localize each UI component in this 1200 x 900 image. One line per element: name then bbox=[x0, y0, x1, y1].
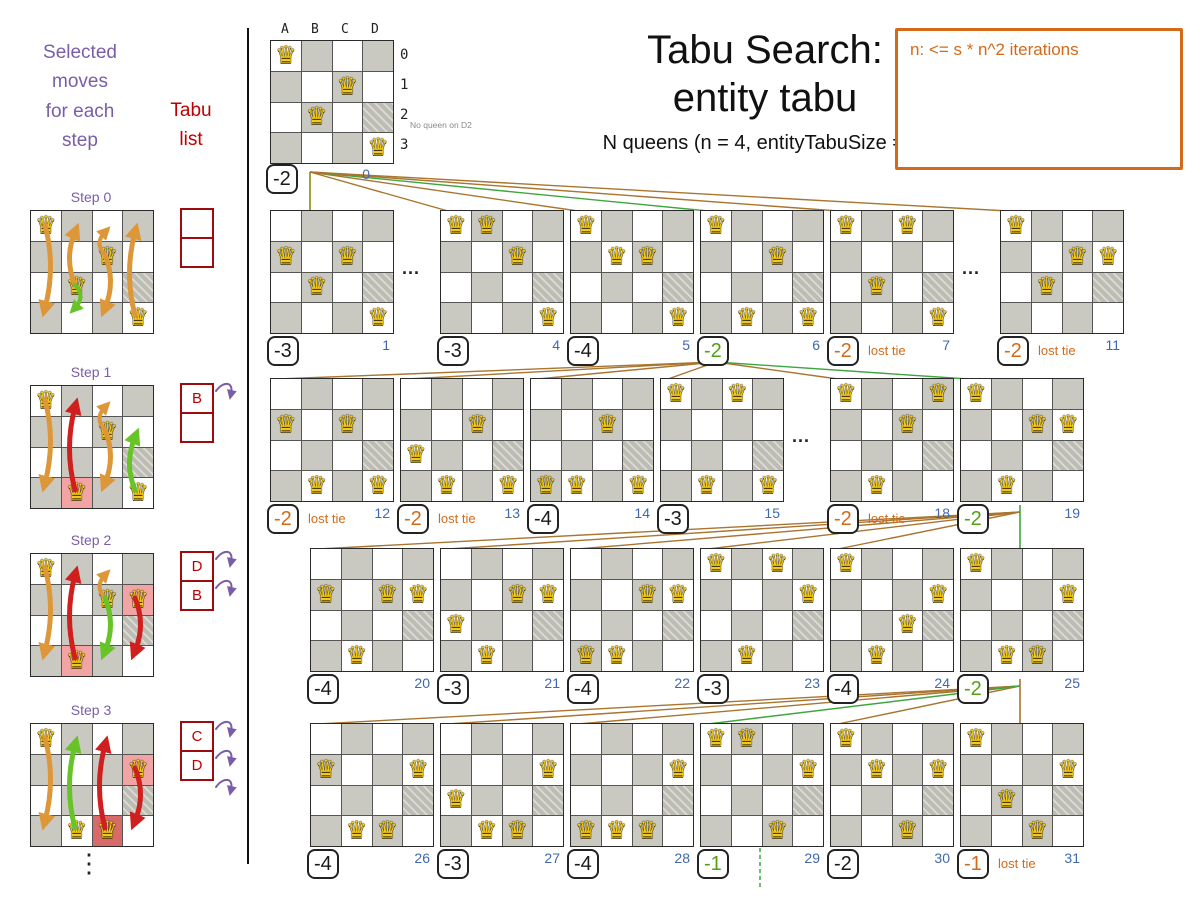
cell-C3 bbox=[463, 471, 493, 501]
cell-B0 bbox=[992, 724, 1022, 754]
cell-D1 bbox=[923, 410, 953, 440]
cell-A1: ♛ bbox=[311, 580, 341, 610]
cell-B0 bbox=[992, 379, 1022, 409]
cell-D2 bbox=[793, 611, 823, 641]
queen-icon: ♛ bbox=[337, 413, 359, 437]
cell-A3 bbox=[441, 816, 471, 846]
cell-C2 bbox=[503, 273, 533, 303]
cell-C3: ♛ bbox=[763, 816, 793, 846]
cell-A2 bbox=[701, 786, 731, 816]
cell-A2 bbox=[571, 611, 601, 641]
cell-B3 bbox=[862, 816, 892, 846]
cell-C3 bbox=[633, 641, 663, 671]
score-badge-20: -4 bbox=[307, 674, 339, 704]
cell-B1 bbox=[62, 585, 92, 615]
cell-A3 bbox=[831, 471, 861, 501]
cell-C0 bbox=[463, 379, 493, 409]
cell-D0 bbox=[533, 549, 563, 579]
score-badge-28: -4 bbox=[567, 849, 599, 879]
cell-B1 bbox=[342, 755, 372, 785]
ellipsis-horizontal: ... bbox=[792, 426, 810, 447]
solution-board-11: ♛♛♛♛ bbox=[1000, 210, 1124, 334]
solution-board-22: ♛♛♛♛ bbox=[570, 548, 694, 672]
cell-D2 bbox=[623, 441, 653, 471]
cell-D2 bbox=[793, 786, 823, 816]
cell-C1: ♛ bbox=[893, 410, 923, 440]
cell-A2 bbox=[531, 441, 561, 471]
cell-B2 bbox=[472, 786, 502, 816]
cell-B0 bbox=[862, 379, 892, 409]
column-label: B bbox=[311, 22, 319, 37]
cell-D2 bbox=[1053, 441, 1083, 471]
cell-D3 bbox=[1053, 816, 1083, 846]
cell-C1 bbox=[1023, 580, 1053, 610]
queen-icon: ♛ bbox=[445, 788, 467, 812]
cell-A2 bbox=[31, 448, 61, 478]
cell-A1 bbox=[961, 755, 991, 785]
solution-board-26: ♛♛♛♛ bbox=[310, 723, 434, 847]
cell-B2 bbox=[732, 611, 762, 641]
cell-D1: ♛ bbox=[923, 580, 953, 610]
cell-A0 bbox=[571, 549, 601, 579]
cell-A1 bbox=[31, 417, 61, 447]
cell-B3 bbox=[732, 816, 762, 846]
queen-icon: ♛ bbox=[797, 583, 819, 607]
cell-C3 bbox=[893, 471, 923, 501]
cell-A3 bbox=[961, 471, 991, 501]
cell-D1: ♛ bbox=[1093, 242, 1123, 272]
score-badge-6: -2 bbox=[697, 336, 729, 366]
cell-D0 bbox=[923, 724, 953, 754]
solution-board-21: ♛♛♛♛ bbox=[440, 548, 564, 672]
cell-D2 bbox=[1053, 786, 1083, 816]
cell-B1 bbox=[562, 410, 592, 440]
cell-C3 bbox=[763, 641, 793, 671]
cell-D3 bbox=[923, 816, 953, 846]
cell-C3 bbox=[333, 303, 363, 333]
cell-D1 bbox=[123, 417, 153, 447]
queen-icon: ♛ bbox=[996, 788, 1018, 812]
cell-B1 bbox=[472, 242, 502, 272]
cell-A2: ♛ bbox=[441, 611, 471, 641]
queen-icon: ♛ bbox=[965, 382, 987, 406]
solution-board-25: ♛♛♛♛ bbox=[960, 548, 1084, 672]
cell-A1 bbox=[701, 580, 731, 610]
cell-A1 bbox=[271, 72, 301, 102]
move-arrow bbox=[216, 581, 232, 591]
solution-board-7: ♛♛♛♛ bbox=[830, 210, 954, 334]
cell-A3 bbox=[441, 303, 471, 333]
cell-B0 bbox=[602, 724, 632, 754]
cell-A2 bbox=[701, 611, 731, 641]
solution-board-30: ♛♛♛♛ bbox=[830, 723, 954, 847]
cell-D2 bbox=[493, 441, 523, 471]
cell-C2 bbox=[93, 448, 123, 478]
queen-icon: ♛ bbox=[367, 306, 389, 330]
cell-A1 bbox=[701, 242, 731, 272]
cell-B2 bbox=[862, 786, 892, 816]
queen-icon: ♛ bbox=[606, 644, 628, 668]
queen-icon: ♛ bbox=[575, 819, 597, 843]
cell-D2 bbox=[533, 786, 563, 816]
queen-icon: ♛ bbox=[306, 105, 328, 129]
cell-B1 bbox=[732, 755, 762, 785]
cell-A0: ♛ bbox=[831, 549, 861, 579]
cell-C1 bbox=[763, 580, 793, 610]
cell-B3 bbox=[992, 816, 1022, 846]
cell-A1 bbox=[401, 410, 431, 440]
cell-A3 bbox=[31, 478, 61, 508]
cell-C2 bbox=[373, 786, 403, 816]
cell-D1: ♛ bbox=[123, 755, 153, 785]
cell-C0 bbox=[503, 211, 533, 241]
cell-A0: ♛ bbox=[961, 549, 991, 579]
cell-D3 bbox=[663, 641, 693, 671]
cell-C1: ♛ bbox=[763, 242, 793, 272]
queen-icon: ♛ bbox=[897, 214, 919, 238]
ellipsis-vertical: ⋮ bbox=[76, 848, 102, 879]
queen-icon: ♛ bbox=[705, 552, 727, 576]
cell-D3: ♛ bbox=[363, 133, 393, 163]
score-badge-15: -3 bbox=[657, 504, 689, 534]
queen-icon: ♛ bbox=[507, 583, 529, 607]
step-board-2: ♛♛♛♛ bbox=[30, 553, 154, 677]
cell-D0 bbox=[123, 724, 153, 754]
cell-B3 bbox=[602, 303, 632, 333]
cell-C2 bbox=[593, 441, 623, 471]
cell-D0 bbox=[663, 211, 693, 241]
cell-A0: ♛ bbox=[31, 211, 61, 241]
cell-A3: ♛ bbox=[531, 471, 561, 501]
cell-D2 bbox=[363, 441, 393, 471]
cell-B0 bbox=[1032, 211, 1062, 241]
cell-A2 bbox=[831, 273, 861, 303]
cell-A0: ♛ bbox=[701, 549, 731, 579]
cell-C2 bbox=[893, 273, 923, 303]
no-queen-annotation: No queen on D2 bbox=[410, 120, 472, 130]
cell-B0 bbox=[62, 386, 92, 416]
queen-icon: ♛ bbox=[1057, 583, 1079, 607]
queen-icon: ♛ bbox=[927, 306, 949, 330]
queen-icon: ♛ bbox=[767, 245, 789, 269]
cell-D0 bbox=[1053, 549, 1083, 579]
cell-A3 bbox=[831, 303, 861, 333]
cell-D3 bbox=[793, 641, 823, 671]
cell-A3 bbox=[31, 646, 61, 676]
cell-D0 bbox=[753, 379, 783, 409]
queen-icon: ♛ bbox=[476, 819, 498, 843]
cell-C2 bbox=[93, 786, 123, 816]
cell-A1 bbox=[571, 242, 601, 272]
lost-tie-label: lost tie bbox=[868, 511, 906, 526]
cell-D0 bbox=[363, 211, 393, 241]
cell-A1 bbox=[961, 580, 991, 610]
score-badge-25: -2 bbox=[957, 674, 989, 704]
cell-C0 bbox=[1023, 549, 1053, 579]
cell-A1 bbox=[961, 410, 991, 440]
root-board: ♛♛♛♛ bbox=[270, 40, 394, 164]
tabu-list-header: Tabu list bbox=[146, 96, 236, 155]
queen-icon: ♛ bbox=[507, 819, 529, 843]
queen-icon: ♛ bbox=[606, 819, 628, 843]
cell-D1 bbox=[363, 410, 393, 440]
cell-A1: ♛ bbox=[311, 755, 341, 785]
cell-A2 bbox=[31, 273, 61, 303]
cell-A3 bbox=[311, 816, 341, 846]
lost-tie-label: lost tie bbox=[1038, 343, 1076, 358]
cell-D0 bbox=[533, 211, 563, 241]
move-arrow bbox=[216, 384, 232, 394]
cell-D3: ♛ bbox=[923, 303, 953, 333]
cell-B3 bbox=[472, 303, 502, 333]
cell-B1: ♛ bbox=[602, 242, 632, 272]
queen-icon: ♛ bbox=[667, 758, 689, 782]
cell-C0 bbox=[93, 386, 123, 416]
cell-A0 bbox=[311, 724, 341, 754]
cell-D1 bbox=[123, 242, 153, 272]
cell-B0: ♛ bbox=[472, 211, 502, 241]
queen-icon: ♛ bbox=[727, 382, 749, 406]
cell-C3 bbox=[93, 646, 123, 676]
cell-D0 bbox=[1053, 379, 1083, 409]
cell-D1 bbox=[663, 242, 693, 272]
cell-B0 bbox=[302, 41, 332, 71]
queen-icon: ♛ bbox=[537, 306, 559, 330]
cell-B1 bbox=[992, 580, 1022, 610]
cell-C3 bbox=[93, 303, 123, 333]
cell-C0 bbox=[503, 724, 533, 754]
cell-B2 bbox=[732, 273, 762, 303]
queen-icon: ♛ bbox=[767, 552, 789, 576]
moves-header: Selected moves for each step bbox=[8, 38, 152, 156]
cell-B2 bbox=[472, 611, 502, 641]
cell-D2 bbox=[923, 441, 953, 471]
cell-A2 bbox=[701, 273, 731, 303]
cell-B2: ♛ bbox=[862, 273, 892, 303]
cell-C1: ♛ bbox=[593, 410, 623, 440]
cell-A0 bbox=[271, 211, 301, 241]
cell-D3 bbox=[663, 816, 693, 846]
lost-tie-label: lost tie bbox=[868, 343, 906, 358]
cell-C3: ♛ bbox=[893, 816, 923, 846]
cell-D1: ♛ bbox=[793, 580, 823, 610]
cell-B2 bbox=[302, 441, 332, 471]
queen-icon: ♛ bbox=[575, 644, 597, 668]
cell-D0 bbox=[793, 724, 823, 754]
cell-B1 bbox=[862, 242, 892, 272]
cell-B2: ♛ bbox=[1032, 273, 1062, 303]
cell-C1: ♛ bbox=[373, 580, 403, 610]
cell-A0: ♛ bbox=[31, 724, 61, 754]
queen-icon: ♛ bbox=[127, 481, 149, 505]
cell-D0: ♛ bbox=[923, 379, 953, 409]
queen-icon: ♛ bbox=[835, 727, 857, 751]
queen-icon: ♛ bbox=[1097, 245, 1119, 269]
cell-A3 bbox=[961, 816, 991, 846]
cell-A1 bbox=[31, 585, 61, 615]
cell-D2 bbox=[793, 273, 823, 303]
queen-icon: ♛ bbox=[66, 275, 88, 299]
cell-B0 bbox=[602, 549, 632, 579]
cell-A0: ♛ bbox=[271, 41, 301, 71]
cell-D2 bbox=[363, 103, 393, 133]
row-label: 2 bbox=[400, 107, 408, 123]
cell-A0: ♛ bbox=[701, 724, 731, 754]
queen-icon: ♛ bbox=[127, 588, 149, 612]
cell-B2 bbox=[342, 786, 372, 816]
cell-A0: ♛ bbox=[661, 379, 691, 409]
cell-A3 bbox=[571, 303, 601, 333]
queen-icon: ♛ bbox=[797, 306, 819, 330]
cell-C1: ♛ bbox=[333, 242, 363, 272]
queen-icon: ♛ bbox=[127, 758, 149, 782]
cell-C0 bbox=[1063, 211, 1093, 241]
cell-C2 bbox=[373, 611, 403, 641]
cell-D1: ♛ bbox=[923, 755, 953, 785]
cell-D2 bbox=[1053, 611, 1083, 641]
queen-icon: ♛ bbox=[835, 552, 857, 576]
cell-B3: ♛ bbox=[992, 471, 1022, 501]
solution-board-23: ♛♛♛♛ bbox=[700, 548, 824, 672]
connection-line bbox=[716, 362, 838, 379]
tabu-slot bbox=[180, 412, 214, 443]
cell-D3 bbox=[923, 471, 953, 501]
step-label: Step 0 bbox=[30, 189, 152, 205]
cell-A1 bbox=[31, 755, 61, 785]
queen-icon: ♛ bbox=[97, 245, 119, 269]
move-arrow bbox=[216, 780, 232, 790]
cell-B1 bbox=[472, 580, 502, 610]
cell-B2 bbox=[432, 441, 462, 471]
step-board-3: ♛♛♛♛ bbox=[30, 723, 154, 847]
cell-B3 bbox=[302, 303, 332, 333]
cell-D1: ♛ bbox=[663, 755, 693, 785]
cell-A3 bbox=[31, 303, 61, 333]
cell-D1 bbox=[363, 72, 393, 102]
score-badge-21: -3 bbox=[437, 674, 469, 704]
queen-icon: ♛ bbox=[1027, 413, 1049, 437]
queen-icon: ♛ bbox=[507, 245, 529, 269]
cell-B0 bbox=[302, 211, 332, 241]
cell-B1 bbox=[302, 72, 332, 102]
move-arrow bbox=[216, 552, 232, 562]
cell-C0 bbox=[503, 549, 533, 579]
cell-D0 bbox=[1053, 724, 1083, 754]
cell-D1: ♛ bbox=[663, 580, 693, 610]
cell-C3: ♛ bbox=[503, 816, 533, 846]
move-arrow bbox=[216, 751, 232, 761]
queen-icon: ♛ bbox=[835, 214, 857, 238]
queen-icon: ♛ bbox=[35, 727, 57, 751]
queen-icon: ♛ bbox=[866, 275, 888, 299]
queen-icon: ♛ bbox=[445, 214, 467, 238]
cell-A0 bbox=[441, 549, 471, 579]
cell-D2 bbox=[663, 273, 693, 303]
cell-A2 bbox=[961, 611, 991, 641]
cell-B1 bbox=[692, 410, 722, 440]
cell-C3 bbox=[723, 471, 753, 501]
cell-A3 bbox=[1001, 303, 1031, 333]
step-label: Step 3 bbox=[30, 702, 152, 718]
queen-icon: ♛ bbox=[866, 644, 888, 668]
cell-D0 bbox=[403, 724, 433, 754]
cell-B1: ♛ bbox=[862, 755, 892, 785]
cell-D3 bbox=[403, 641, 433, 671]
queen-icon: ♛ bbox=[1067, 245, 1089, 269]
cell-B2 bbox=[62, 616, 92, 646]
cell-B1 bbox=[62, 242, 92, 272]
cell-C2 bbox=[503, 611, 533, 641]
queen-icon: ♛ bbox=[66, 481, 88, 505]
score-badge-24: -4 bbox=[827, 674, 859, 704]
cell-D2 bbox=[753, 441, 783, 471]
tabu-slot: B bbox=[180, 383, 214, 414]
cell-A3 bbox=[961, 641, 991, 671]
cell-D2 bbox=[123, 448, 153, 478]
cell-D0 bbox=[123, 211, 153, 241]
tabu-slot bbox=[180, 208, 214, 239]
cell-A3: ♛ bbox=[571, 641, 601, 671]
solution-board-20: ♛♛♛♛ bbox=[310, 548, 434, 672]
cell-C1: ♛ bbox=[1063, 242, 1093, 272]
cell-B1 bbox=[732, 242, 762, 272]
cell-C2 bbox=[1023, 786, 1053, 816]
cell-C3 bbox=[503, 303, 533, 333]
cell-D3: ♛ bbox=[363, 471, 393, 501]
queen-icon: ♛ bbox=[575, 214, 597, 238]
queen-icon: ♛ bbox=[537, 583, 559, 607]
cell-C2 bbox=[893, 786, 923, 816]
cell-D1 bbox=[623, 410, 653, 440]
cell-A2 bbox=[571, 273, 601, 303]
ellipsis-horizontal: ... bbox=[962, 258, 980, 279]
cell-C1: ♛ bbox=[93, 585, 123, 615]
cell-C1 bbox=[893, 580, 923, 610]
cell-C2 bbox=[633, 786, 663, 816]
queen-icon: ♛ bbox=[897, 413, 919, 437]
row-label: 1 bbox=[400, 77, 408, 93]
cell-C0 bbox=[1023, 724, 1053, 754]
queen-icon: ♛ bbox=[445, 613, 467, 637]
score-badge-22: -4 bbox=[567, 674, 599, 704]
queen-icon: ♛ bbox=[797, 758, 819, 782]
cell-D3: ♛ bbox=[533, 303, 563, 333]
cell-C2 bbox=[333, 273, 363, 303]
tabu-slot: B bbox=[180, 580, 214, 611]
solution-board-19: ♛♛♛♛ bbox=[960, 378, 1084, 502]
cell-C0 bbox=[373, 724, 403, 754]
cell-C1: ♛ bbox=[1023, 410, 1053, 440]
queen-icon: ♛ bbox=[275, 245, 297, 269]
queen-icon: ♛ bbox=[665, 382, 687, 406]
score-badge-root: -2 bbox=[266, 164, 298, 194]
solution-board-27: ♛♛♛♛ bbox=[440, 723, 564, 847]
cell-A2 bbox=[271, 273, 301, 303]
queen-icon: ♛ bbox=[367, 136, 389, 160]
cell-D2 bbox=[923, 786, 953, 816]
score-badge-14: -4 bbox=[527, 504, 559, 534]
cell-B1 bbox=[302, 410, 332, 440]
cell-A0: ♛ bbox=[961, 724, 991, 754]
cell-D0 bbox=[363, 41, 393, 71]
cell-A2 bbox=[661, 441, 691, 471]
cell-B2 bbox=[62, 448, 92, 478]
cell-A0 bbox=[271, 379, 301, 409]
queen-icon: ♛ bbox=[275, 44, 297, 68]
cell-A1: ♛ bbox=[271, 242, 301, 272]
solution-board-28: ♛♛♛♛ bbox=[570, 723, 694, 847]
queen-icon: ♛ bbox=[1036, 275, 1058, 299]
